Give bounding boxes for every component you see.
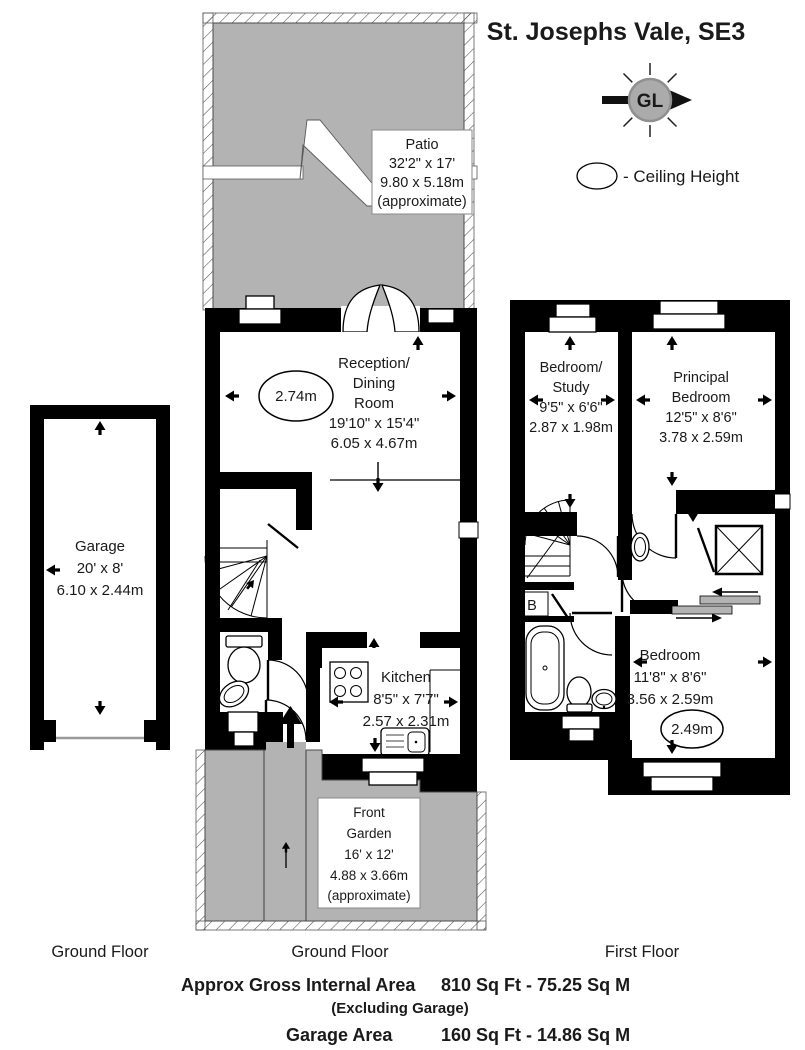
reception-name-3: Room [354, 395, 394, 412]
principal-dims-imperial: 12'5" x 8'6" [665, 410, 736, 426]
floorplan-page: St. Josephs Vale, SE3 GL - Ceiling Heigh… [0, 0, 805, 1050]
study-name-2: Study [552, 380, 590, 396]
front-garden-label-box: Front Garden 16' x 12' 4.88 x 3.66m (app… [318, 798, 420, 908]
principal-window-upper [660, 301, 718, 314]
bedroom-ceiling-height: 2.49m [671, 721, 713, 738]
principal-name-2: Bedroom [672, 390, 731, 406]
study-dims-imperial: 9'5" x 6'6" [539, 400, 602, 416]
garage-area-label: Garage Area [286, 1025, 393, 1045]
bedroom-window-upper [643, 762, 721, 777]
entry-path [266, 742, 306, 751]
study-dims-metric: 2.87 x 1.98m [529, 420, 613, 436]
bedroom-dims-metric: 3.56 x 2.59m [627, 691, 714, 708]
patio-dims-metric: 9.80 x 5.18m [380, 175, 464, 191]
toilet-cistern [226, 636, 262, 647]
ceiling-height-legend-label: - Ceiling Height [623, 167, 739, 186]
reception-dims-imperial: 19'10" x 15'4" [329, 415, 420, 432]
porch-step-upper [228, 712, 258, 732]
bedroom-name: Bedroom [640, 647, 701, 664]
garden-dims-imperial: 16' x 12' [344, 847, 393, 862]
gross-internal-area-value: 810 Sq Ft - 75.25 Sq M [441, 975, 630, 995]
garden-name-2: Garden [346, 826, 391, 841]
reception-dims-metric: 6.05 x 4.67m [331, 435, 418, 452]
excluding-garage-note: (Excluding Garage) [331, 1000, 469, 1017]
patio-dims-imperial: 32'2" x 17' [389, 156, 456, 172]
principal-dims-metric: 3.78 x 2.59m [659, 430, 743, 446]
garage-floor-label: Ground Floor [51, 943, 149, 961]
garage-area-value: 160 Sq Ft - 14.86 Sq M [441, 1025, 630, 1045]
kitchen-window-lower [369, 772, 417, 785]
study-name-1: Bedroom/ [540, 360, 604, 376]
principal-name-1: Principal [673, 370, 729, 386]
patio-note: (approximate) [377, 194, 466, 210]
garage-room-name: Garage [75, 538, 125, 555]
bathroom-basin-icon [592, 690, 616, 709]
kitchen-dims-metric: 2.57 x 2.31m [363, 713, 450, 730]
first-floorplan: Bedroom/ Study 9'5" x 6'6" 2.87 x 1.98m … [510, 300, 790, 795]
shower-enclosure-icon [716, 526, 762, 574]
garage-dims-imperial: 20' x 8' [77, 560, 124, 577]
footer: Ground Floor Ground Floor First Floor Ap… [51, 943, 679, 1045]
reception-window-lower [239, 309, 281, 324]
patio-name: Patio [405, 137, 438, 153]
reception-name-1: Reception/ [338, 355, 411, 372]
bedroom-dims-imperial: 11'8" x 8'6" [634, 669, 707, 686]
kitchen-sink-icon [381, 728, 429, 756]
garage-floorplan: Garage 20' x 8' 6.10 x 2.44m [30, 405, 170, 750]
kitchen-dims-imperial: 8'5" x 7'7" [373, 691, 439, 708]
garden-dims-metric: 4.88 x 3.66m [330, 868, 408, 883]
first-floor-label: First Floor [605, 943, 680, 961]
reception-window-upper [246, 296, 274, 309]
kitchen-window-upper [362, 758, 424, 772]
reception-ceiling-height: 2.74m [275, 388, 317, 405]
patio-break-band-left [203, 166, 303, 179]
toilet-icon [228, 647, 260, 683]
bathroom-window-lower [569, 729, 594, 741]
principal-window-lower [653, 314, 725, 329]
stove-icon [330, 662, 368, 702]
side-window [459, 522, 478, 538]
compass-label: GL [637, 91, 664, 112]
page-title: St. Josephs Vale, SE3 [487, 18, 745, 46]
garden-name-1: Front [353, 805, 385, 820]
study-window-lower [549, 317, 596, 332]
porch-step-lower [234, 732, 254, 746]
ground-floor-label: Ground Floor [291, 943, 389, 961]
bathtub-icon [526, 626, 564, 710]
reception-name-2: Dining [353, 375, 396, 392]
garden-note: (approximate) [327, 888, 410, 903]
shower-basin-icon [631, 533, 649, 561]
bathroom-toilet-icon [567, 677, 591, 707]
floorplan-canvas: St. Josephs Vale, SE3 GL - Ceiling Heigh… [0, 0, 805, 1050]
reception-window-right [428, 309, 454, 323]
boiler-label: B [527, 598, 537, 614]
garage-dims-metric: 6.10 x 2.44m [57, 582, 144, 599]
ground-floorplan: Reception/ Dining Room 19'10" x 15'4" 6.… [196, 13, 486, 930]
gross-internal-area-label: Approx Gross Internal Area [181, 975, 416, 995]
kitchen-name: Kitchen [381, 669, 431, 686]
bathroom-window-upper [562, 716, 600, 729]
compass-icon: GL [602, 63, 692, 137]
header: St. Josephs Vale, SE3 GL - Ceiling Heigh… [487, 18, 745, 189]
patio-label-box: Patio 32'2" x 17' 9.80 x 5.18m (approxim… [372, 130, 472, 214]
ceiling-height-legend: - Ceiling Height [577, 163, 739, 189]
bedroom-window-lower [651, 777, 713, 791]
study-window-upper [556, 304, 590, 317]
ceiling-height-ellipse-icon [577, 163, 617, 189]
